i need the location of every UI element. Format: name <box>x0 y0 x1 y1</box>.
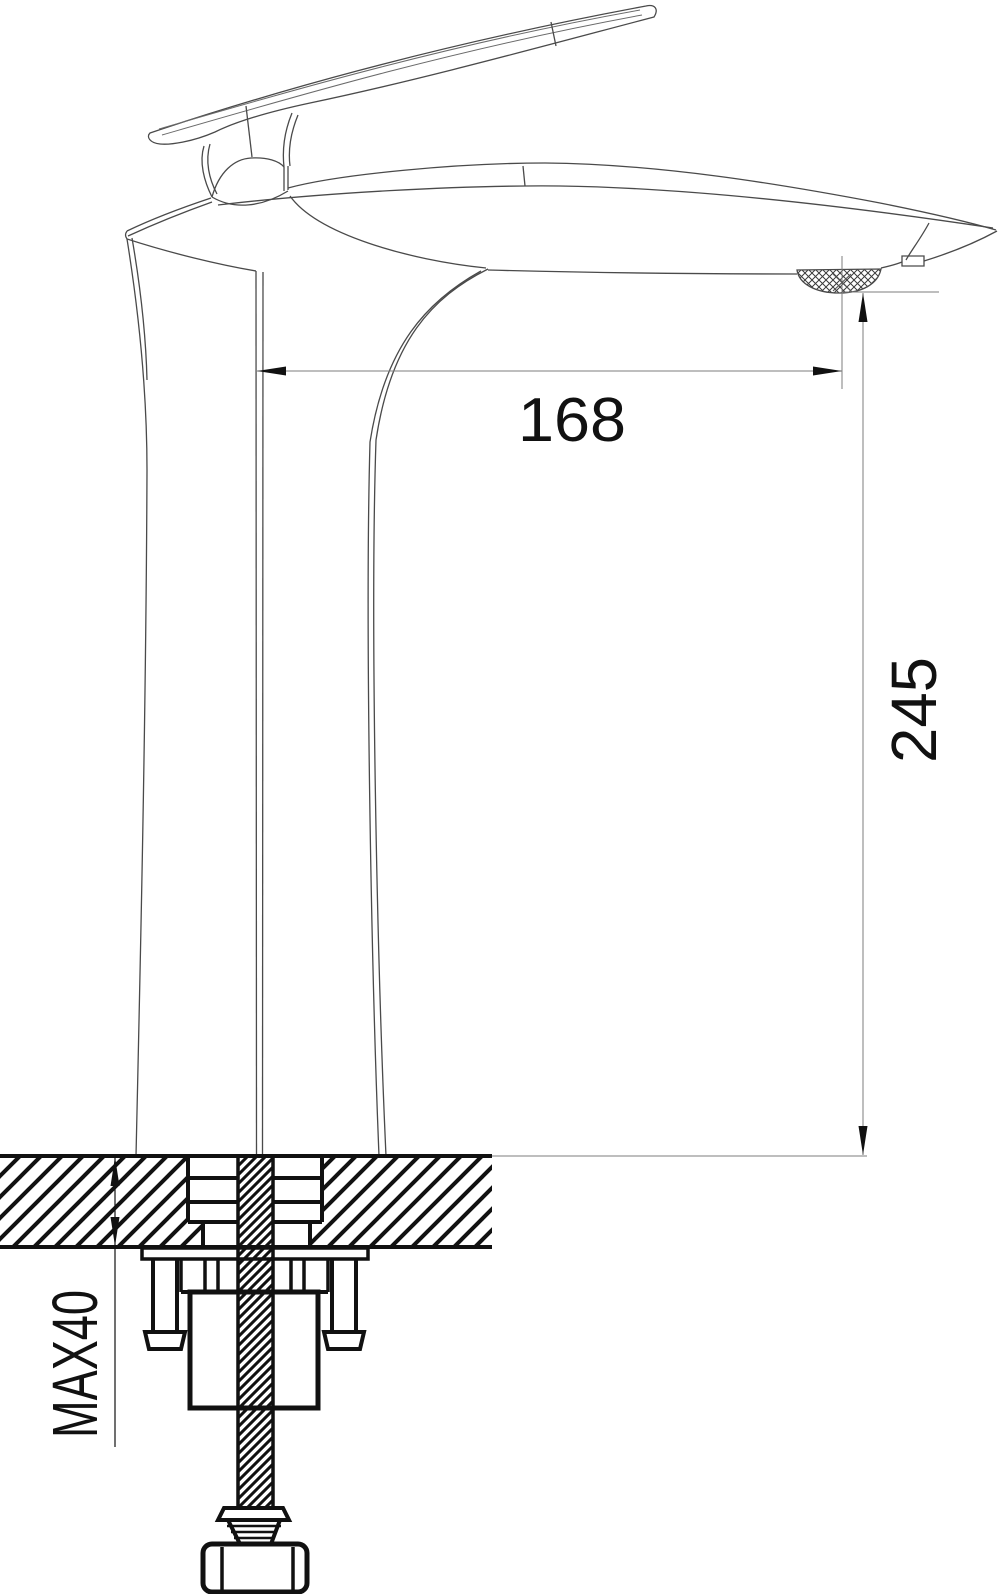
neck-right-inner <box>289 115 298 166</box>
column-front-crease-b <box>262 272 263 1156</box>
head-topleft-edge <box>127 198 211 231</box>
mount-bolt-left <box>153 1259 177 1332</box>
column-tail-outer <box>374 269 488 1156</box>
arrow-168-right <box>813 367 842 376</box>
body-column <box>127 238 488 1156</box>
head-topleft-edge2 <box>128 202 212 236</box>
mount-bolt-right-head <box>324 1332 364 1349</box>
faucet-outline <box>126 6 998 1156</box>
dome-saddle <box>212 191 288 205</box>
faucet-technical-drawing: 168 245 MAX40 <box>0 0 1000 1594</box>
spout-underside <box>488 270 797 274</box>
spout-underside-right <box>881 262 902 268</box>
column-tail-inner <box>368 271 481 1156</box>
spout-end-tab <box>902 256 924 266</box>
arrow-245-top <box>859 293 868 322</box>
arrow-245-bottom <box>859 1126 868 1155</box>
column-front-crease-a <box>256 271 257 1156</box>
spout-tip-seam <box>906 223 929 260</box>
dimension-label-spout-reach: 168 <box>518 386 626 455</box>
faucet-dimension-drawing-page: 168 245 MAX40 <box>0 0 1000 1594</box>
head-bottom-left-edge <box>127 239 256 271</box>
lever-seam-left <box>246 106 252 157</box>
dimension-spout-reach: 168 <box>257 256 851 455</box>
threaded-rod <box>238 1156 273 1510</box>
spout-tip-underside <box>924 231 997 261</box>
column-left-inner-line <box>132 238 147 380</box>
hose-nipple-left <box>181 1259 218 1292</box>
lever-shine-line-1 <box>159 10 640 129</box>
handle-neck <box>202 113 298 205</box>
arrow-168-left <box>257 367 286 376</box>
lever-silhouette <box>148 6 656 145</box>
column-left-edge <box>127 239 147 1156</box>
head-top-inner-line <box>218 186 993 228</box>
head-top-face-tick <box>523 166 525 186</box>
aerator <box>797 269 881 293</box>
threaded-rod-hatch <box>238 1156 273 1510</box>
lever-seam-right <box>551 22 556 46</box>
handle-lever <box>148 6 656 157</box>
head-top-silhouette <box>288 163 996 230</box>
cartridge-dome <box>212 158 284 197</box>
dimension-label-outlet-height: 245 <box>878 657 950 763</box>
mount-bolt-right <box>332 1259 356 1332</box>
head-lower-tail-line <box>290 196 486 268</box>
lever-shine-line-2 <box>162 15 642 135</box>
neck-left-outer <box>202 146 212 197</box>
head-left-tip-wedge <box>126 231 128 239</box>
mount-bolt-left-head <box>145 1332 185 1349</box>
hose-nipple-right <box>291 1259 328 1292</box>
dimension-label-deck-thickness: MAX40 <box>39 1290 111 1438</box>
